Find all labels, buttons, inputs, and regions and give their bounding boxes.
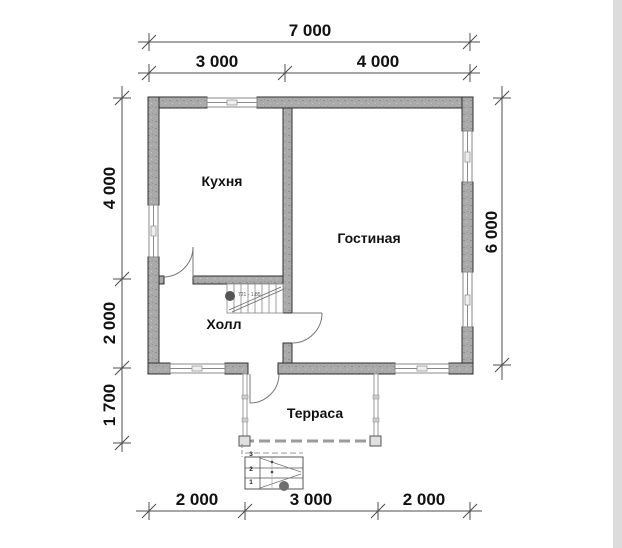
window-living-bottom [395, 364, 449, 373]
dim-top-kitchen: 3 000 [196, 52, 239, 71]
window-kitchen-left [149, 205, 158, 257]
dim-bottom-mid: 3 000 [290, 490, 333, 509]
room-label-terrace: Терраса [287, 405, 343, 421]
entrance-steps: 3 2 1 [242, 444, 303, 491]
dim-bottom-left: 2 000 [176, 490, 219, 509]
image-edge-strip [613, 0, 622, 548]
room-label-hall: Холл [206, 316, 241, 332]
door-living-room [292, 313, 322, 343]
step-number-1: 1 [249, 479, 253, 486]
dim-top-total: 7 000 [289, 21, 332, 40]
window-living-right-lower [463, 272, 472, 327]
windows [149, 98, 472, 373]
window-hall-bottom [170, 364, 225, 373]
floor-plan-page: 721 - 1.85 3 2 [0, 0, 622, 548]
floor-plan-drawing: 721 - 1.85 3 2 [0, 0, 622, 548]
dim-left-lower: 1 700 [100, 384, 119, 427]
terrace-post-left [239, 436, 250, 446]
terrace-post-right [370, 436, 381, 446]
door-kitchen [163, 247, 193, 277]
dimension-labels: 7 000 3 000 4 000 4 000 2 000 1 700 6 00… [100, 21, 501, 509]
terrace-rail-left [243, 374, 247, 440]
staircase: 721 - 1.85 [225, 284, 284, 313]
step-number-3: 3 [249, 451, 253, 458]
dim-left-mid: 2 000 [100, 302, 119, 345]
stair-newel-post [225, 291, 235, 301]
room-label-living: Гостиная [337, 230, 400, 246]
dim-left-upper: 4 000 [100, 167, 119, 210]
stair-annotation: 721 - 1.85 [238, 292, 261, 298]
exterior-walls [148, 97, 473, 374]
dim-top-living: 4 000 [357, 52, 400, 71]
door-entrance [250, 374, 279, 403]
window-living-right-upper [463, 131, 472, 182]
terrace-rail-right [374, 374, 378, 440]
window-kitchen-top [207, 98, 257, 107]
dim-bottom-right: 2 000 [403, 490, 446, 509]
dim-right-total: 6 000 [482, 211, 501, 254]
room-label-kitchen: Кухня [202, 173, 243, 189]
step-post-marker [279, 481, 289, 491]
step-number-2: 2 [249, 466, 253, 473]
